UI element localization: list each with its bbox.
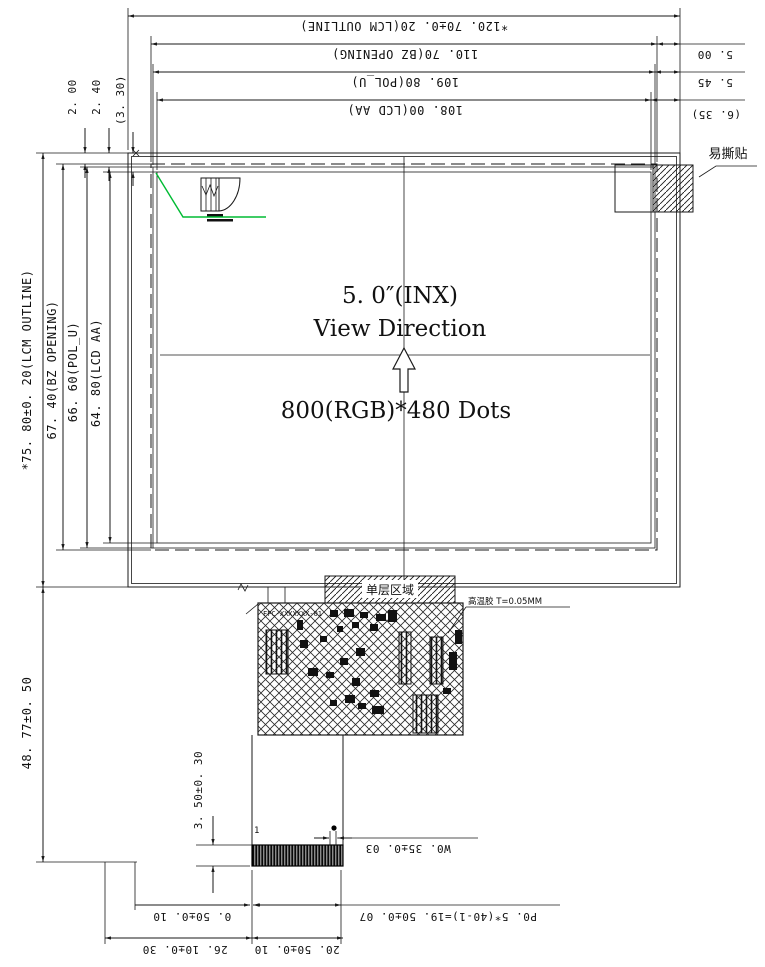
single-layer-label: 单层区域: [366, 583, 414, 597]
dim-offset-26: 26. 10±0. 30: [142, 943, 227, 956]
drawing-canvas: 5. 0″(INX) View Direction 800(RGB)*480 D…: [0, 0, 765, 967]
dim-right-5-45: 5. 45: [697, 76, 733, 89]
dim-right-5-00: 5. 00: [697, 48, 733, 61]
dim-finger-length: 3. 50±0. 30: [192, 751, 205, 829]
resolution-label: 800(RGB)*480 Dots: [281, 398, 511, 424]
fpc-tail: 1: [252, 735, 343, 866]
dim-lcm-width: *120. 70±0. 20(LCM OUTLINE): [300, 19, 509, 33]
dim-offset-2-00: 2. 00: [66, 79, 79, 115]
fpc-region: 单层区域 FPC-XXXXXXX-01: [238, 576, 570, 735]
dim-bz-width: 110. 70(BZ OPENING): [332, 47, 479, 61]
adhesive-label: 高温胶 T=0.05MM: [468, 596, 542, 607]
corner-detail-icon: [156, 173, 266, 222]
left-dimensions: *75. 80±0. 20(LCM OUTLINE) 67. 40(BZ OPE…: [20, 153, 157, 587]
dim-pol-width: 109. 80(POL_U): [351, 75, 459, 89]
dim-right-6-35: (6. 35): [691, 108, 741, 121]
pin1-label: 1: [254, 826, 259, 836]
dim-aa-width: 108. 00(LCD AA): [347, 103, 463, 117]
bottom-dimensions: 0. 50±0. 10 P0. 5*(40-1)=19. 50±0. 07 26…: [105, 862, 560, 956]
top-left-offset-dimensions: 2. 00 2. 40 (3. 30): [66, 75, 133, 186]
dim-offset-3-30: (3. 30): [114, 75, 127, 125]
panel-center-text: 5. 0″(INX) View Direction 800(RGB)*480 D…: [281, 283, 511, 424]
dim-gap: 0. 50±0. 10: [153, 910, 231, 923]
dim-aa-height: 64. 80(LCD AA): [89, 319, 103, 427]
dim-bz-height: 67. 40(BZ OPENING): [45, 300, 59, 439]
dim-offset-2-40: 2. 40: [90, 79, 103, 115]
dim-fpc-drop: 48. 77±0. 50: [20, 677, 34, 770]
top-dimensions: *120. 70±0. 20(LCM OUTLINE) 110. 70(BZ O…: [128, 8, 680, 170]
right-dimensions: 5. 00 5. 45 (6. 35): [651, 44, 745, 121]
tear-sticker-label: 易撕贴: [708, 147, 747, 162]
panel-size-label: 5. 0″(INX): [342, 283, 458, 309]
fpc-drop-dimension: 48. 77±0. 50: [20, 587, 137, 862]
fpc-silk-text: FPC-XXXXXXX-01: [263, 610, 322, 618]
finger-length-dimension: 3. 50±0. 30: [192, 751, 252, 893]
view-direction-label: View Direction: [313, 316, 487, 342]
dim-finger-width: W0. 35±0. 03: [365, 842, 450, 855]
dim-pol-height: 66. 60(POL_U): [66, 322, 80, 422]
dim-pitch: P0. 5*(40-1)=19. 50±0. 07: [359, 910, 537, 923]
dim-tail-width: 20. 50±0. 10: [254, 943, 339, 956]
pin-mark-dot: [331, 825, 336, 830]
lcm-mechanical-drawing: 5. 0″(INX) View Direction 800(RGB)*480 D…: [0, 0, 765, 967]
adhesive-callout: 高温胶 T=0.05MM: [448, 596, 570, 633]
dim-lcm-height: *75. 80±0. 20(LCM OUTLINE): [20, 270, 34, 471]
fpc-connector-fingers: [252, 845, 343, 866]
